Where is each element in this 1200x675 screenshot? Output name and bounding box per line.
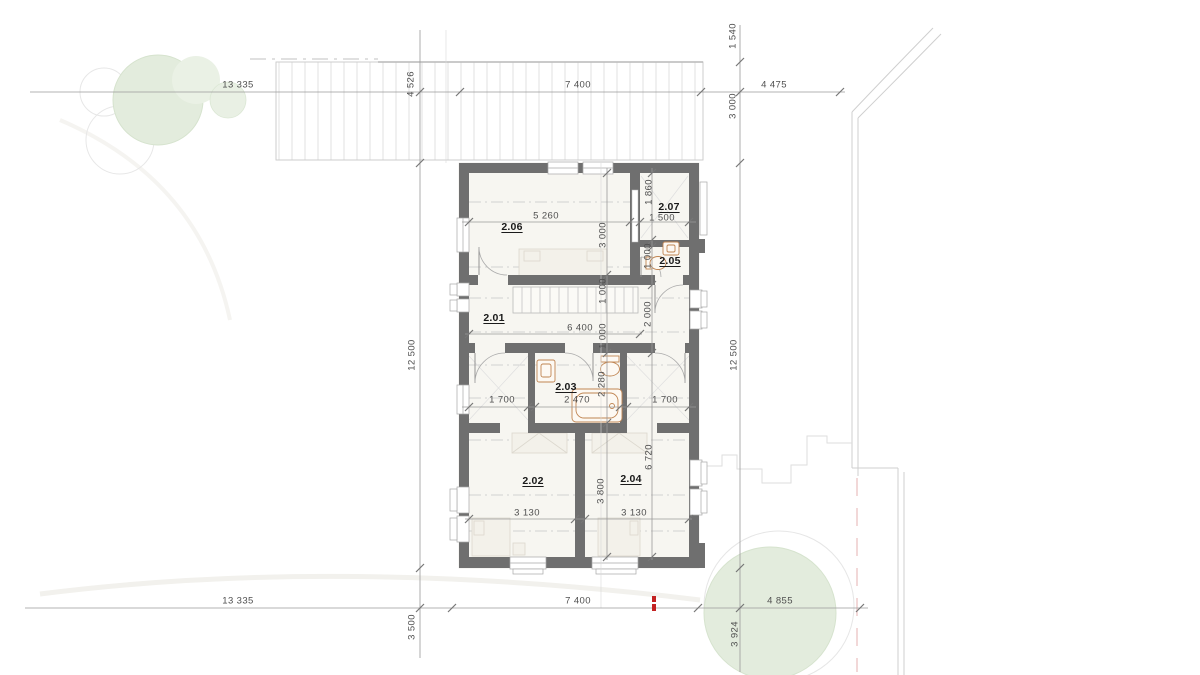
- dimension-label: 7 400: [565, 596, 591, 607]
- dimension-label: 3 500: [407, 614, 418, 640]
- room-label-2-03: 2.03: [555, 381, 576, 393]
- dimension-label: 5 260: [533, 211, 559, 222]
- dimension-label: 3 130: [621, 508, 647, 519]
- dimension-label: 1 000: [598, 278, 609, 304]
- dimension-label: 4 475: [761, 80, 787, 91]
- dimension-label: 2 000: [643, 301, 654, 327]
- dimension-label: 4 855: [767, 596, 793, 607]
- dimension-label: 3 800: [596, 478, 607, 504]
- dimension-label: 3 924: [730, 621, 741, 647]
- dimension-label: 4 526: [406, 71, 417, 97]
- room-label-2-02: 2.02: [522, 475, 543, 487]
- dimension-label: 13 335: [222, 80, 253, 91]
- dimension-label: 3 130: [514, 508, 540, 519]
- labels-layer: 2.012.022.032.042.052.062.0713 3357 4004…: [0, 0, 1200, 675]
- dimension-label: 3 000: [598, 222, 609, 248]
- dimension-label: 2 470: [564, 395, 590, 406]
- floor-plan-page: 2.012.022.032.042.052.062.0713 3357 4004…: [0, 0, 1200, 675]
- dimension-label: 12 500: [407, 339, 418, 370]
- room-label-2-07: 2.07: [658, 201, 679, 213]
- room-label-2-05: 2.05: [659, 255, 680, 267]
- room-label-2-06: 2.06: [501, 221, 522, 233]
- dimension-label: 1 700: [489, 395, 515, 406]
- dimension-label: 12 500: [729, 339, 740, 370]
- dimension-label: 2 280: [597, 371, 608, 397]
- dimension-label: 7 400: [565, 80, 591, 91]
- room-label-2-01: 2.01: [483, 312, 504, 324]
- dimension-label: 1 540: [728, 23, 739, 49]
- room-label-2-04: 2.04: [620, 473, 641, 485]
- dimension-label: 1 500: [649, 213, 675, 224]
- dimension-label: 13 335: [222, 596, 253, 607]
- dimension-label: 6 720: [644, 444, 655, 470]
- dimension-label: 1 860: [644, 179, 655, 205]
- dimension-label: 3 000: [728, 93, 739, 119]
- dimension-label: 1 000: [643, 243, 654, 269]
- dimension-label: 1 000: [598, 323, 609, 349]
- dimension-label: 1 700: [652, 395, 678, 406]
- dimension-label: 6 400: [567, 323, 593, 334]
